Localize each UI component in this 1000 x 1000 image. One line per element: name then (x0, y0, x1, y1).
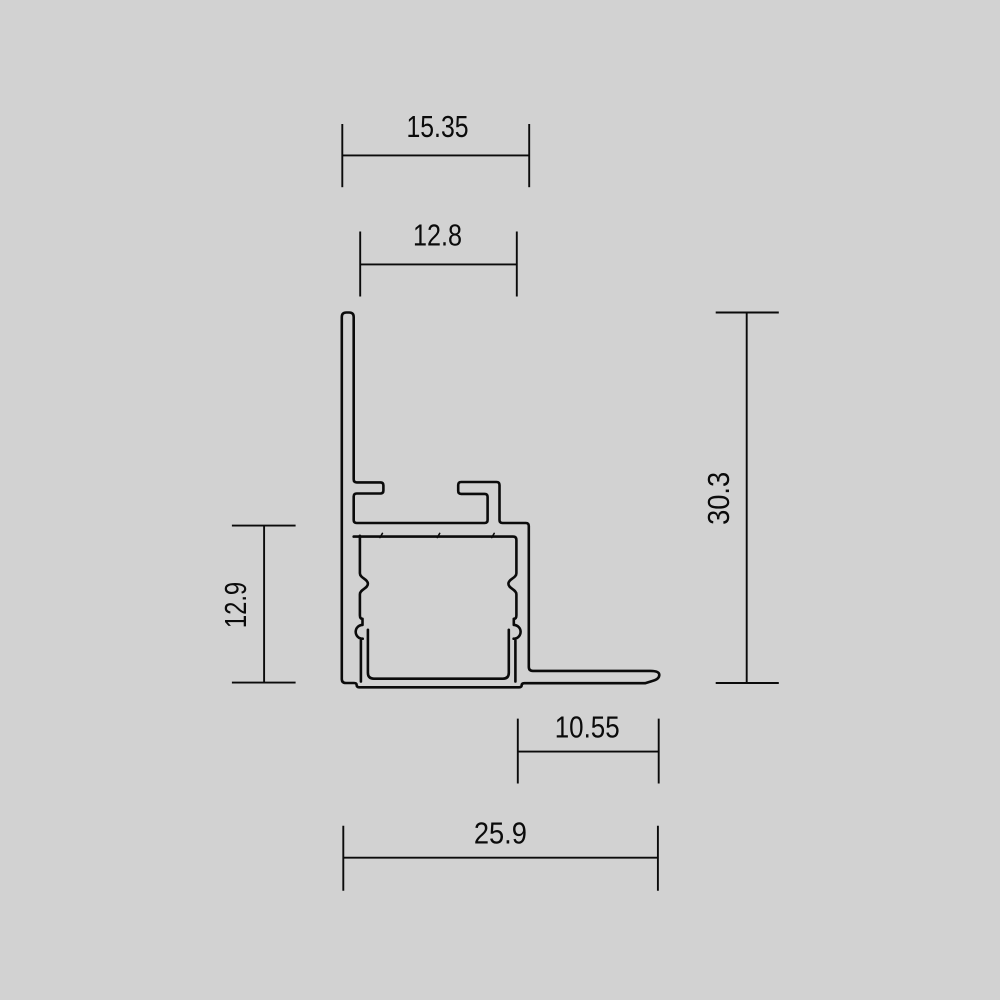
svg-text:15.35: 15.35 (407, 109, 469, 144)
svg-text:10.55: 10.55 (555, 709, 620, 744)
svg-text:30.3: 30.3 (701, 472, 736, 525)
svg-text:25.9: 25.9 (474, 815, 527, 850)
svg-text:12.9: 12.9 (218, 582, 253, 628)
svg-text:12.8: 12.8 (413, 218, 462, 253)
